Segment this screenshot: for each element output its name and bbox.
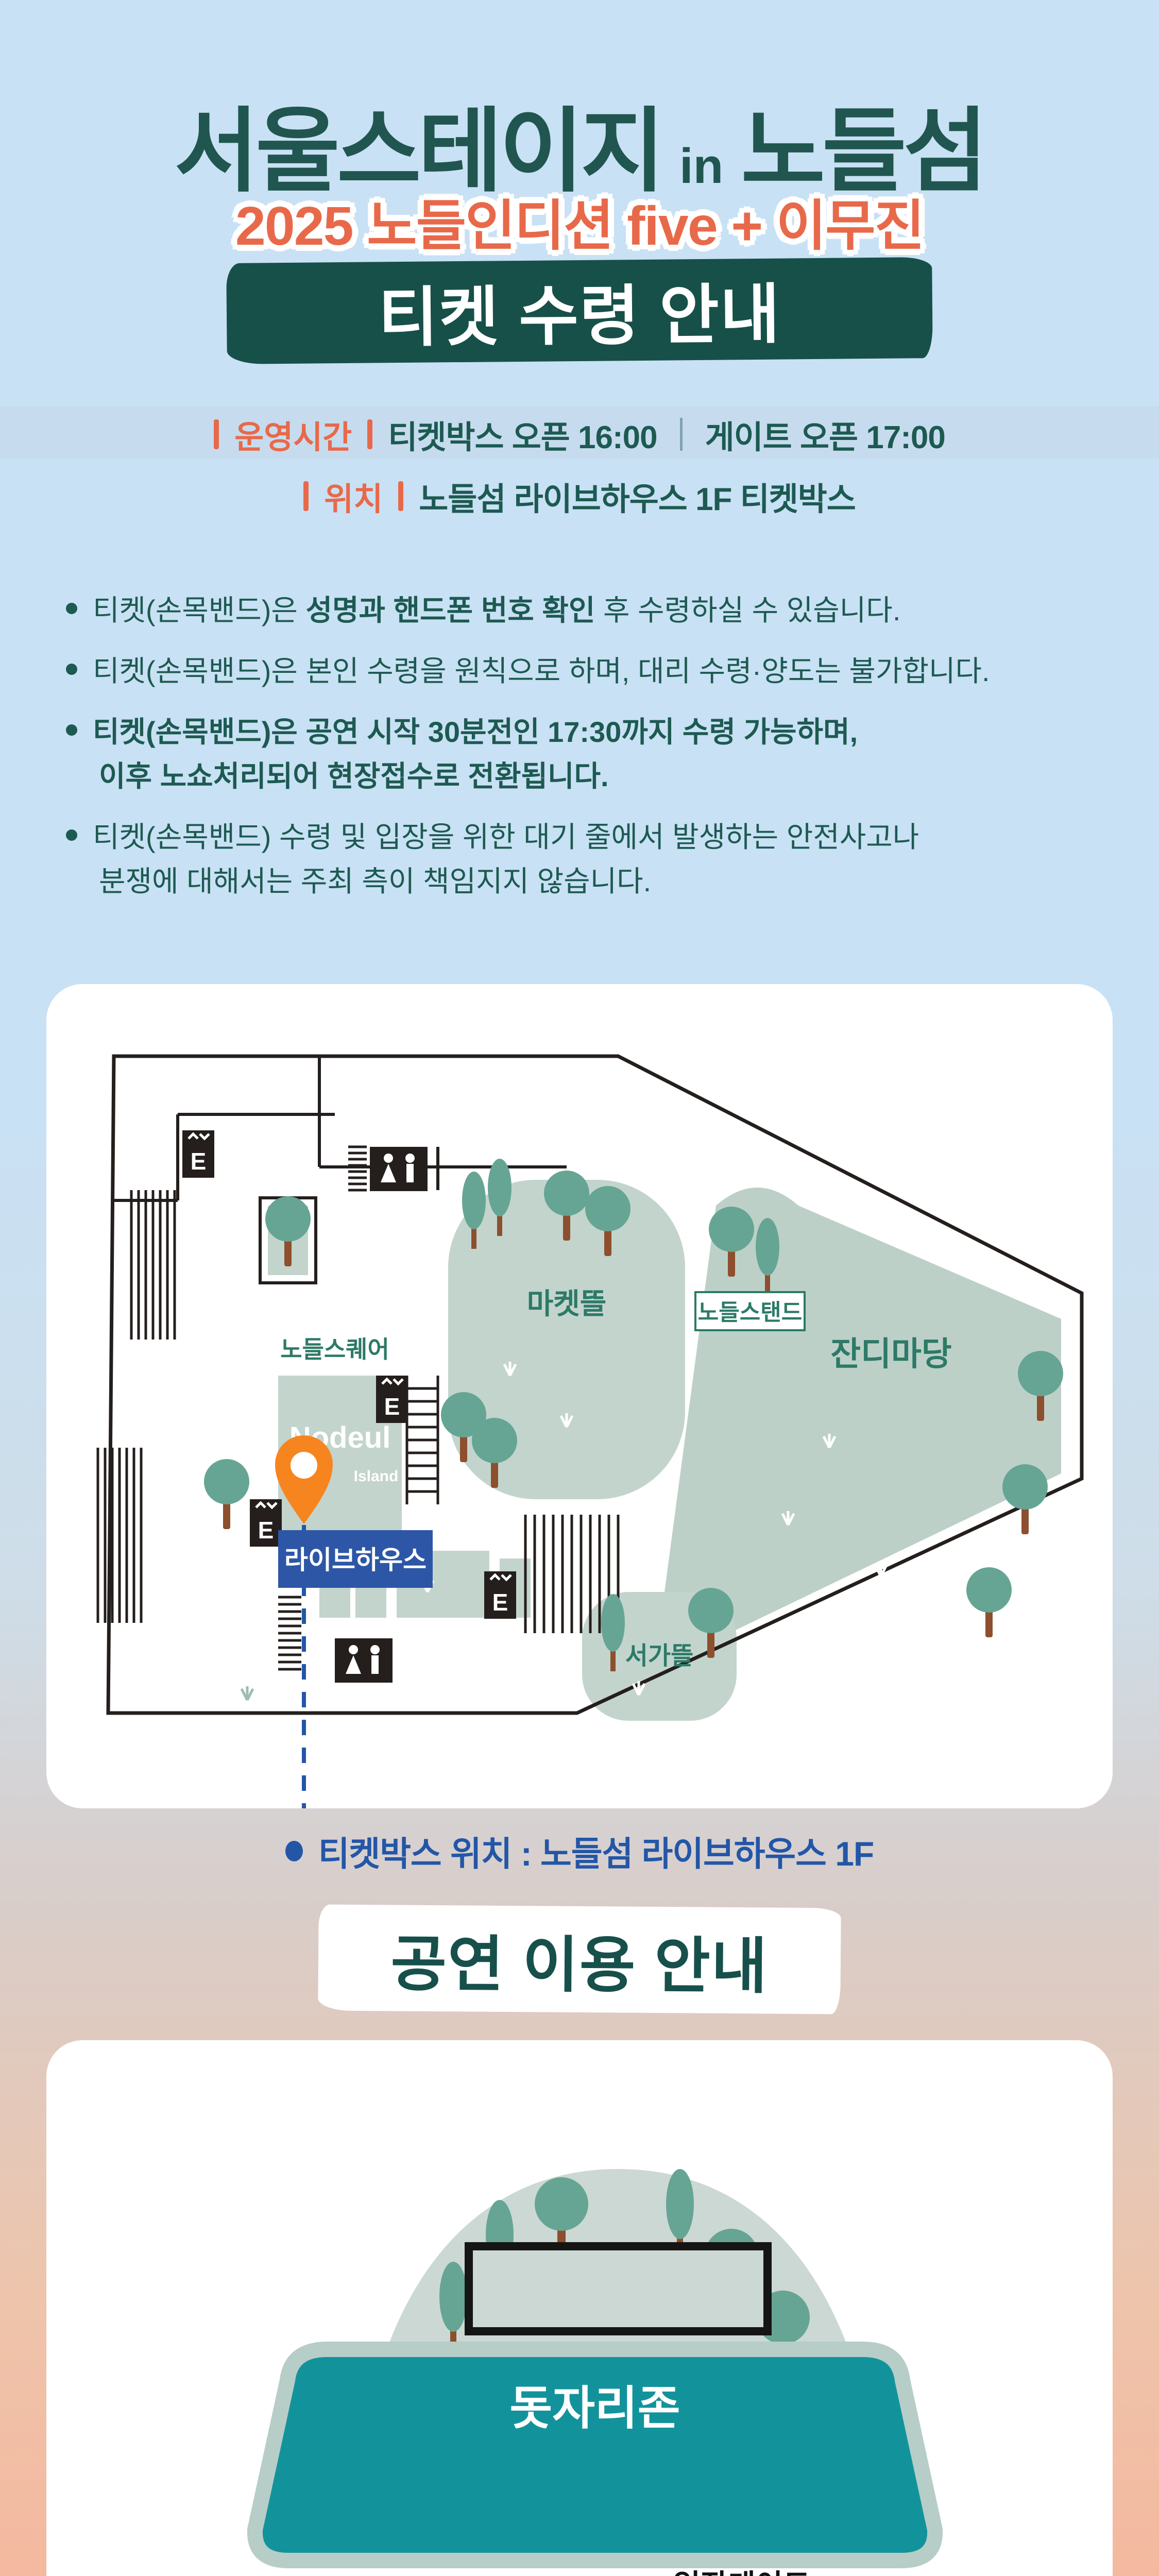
note-text: 분쟁에 대해서는 주최 측이 책임지지 않습니다. [93, 862, 1101, 901]
map-label-market: 마켓뜰 [527, 1287, 607, 1320]
location-value: 노들섬 라이브하우스 1F 티켓박스 [419, 473, 856, 519]
grass-icon [46, 1516, 52, 1530]
elevator-icon: E [182, 1130, 214, 1178]
bar-icon [398, 481, 403, 511]
list-item: 티켓(손목밴드)은 본인 수령을 원칙으로 하며, 대리 수령·양도는 불가합니… [66, 652, 1101, 690]
section-title-ticket-pickup-text: 티켓 수령 안내 [378, 262, 781, 360]
bar-icon [367, 419, 372, 449]
bar-icon [303, 481, 309, 511]
map-label-island: Island [354, 1468, 399, 1485]
elevator-icon: E [484, 1571, 516, 1619]
note-text: 티켓(손목밴드) 수령 및 입장을 위한 대기 줄에서 발생하는 안전사고나 [93, 821, 919, 853]
venue-map-card: E E E E [46, 984, 1113, 1808]
map-label-seoga: 서가뜰 [625, 1642, 693, 1670]
section-title-show-info-text: 공연 이용 안내 [390, 1914, 769, 2005]
blue-dot-icon [285, 1841, 303, 1861]
location-label: 위치 [324, 473, 383, 519]
bullet-dot-icon [66, 664, 77, 675]
hours-label: 운영시간 [234, 411, 352, 457]
note-text: 티켓(손목밴드)은 [93, 594, 306, 626]
tree-icon [1002, 1464, 1048, 1534]
svg-text:E: E [384, 1393, 400, 1420]
bullet-dot-icon [66, 603, 77, 614]
stage-screen [469, 2246, 768, 2331]
elevator-icon: E [250, 1499, 282, 1547]
mat-zone-area [255, 2349, 935, 2561]
restroom-icon [370, 1147, 428, 1191]
svg-text:E: E [492, 1589, 508, 1616]
zones-card: 돗자리존 입장게이트 시팅존 본 공연은 돗자리석과 시팅존으로 운영됩니다. … [46, 2040, 1113, 2576]
note-text: 후 수령하실 수 있습니다. [595, 594, 900, 626]
ticketbox-location-caption: 티켓박스 위치 : 노들섬 라이브하우스 1F [0, 1826, 1159, 1876]
note-text-bold: 티켓(손목밴드)은 공연 시작 30분전인 17:30까지 수령 가능하며, [93, 716, 858, 748]
bullet-dot-icon [66, 829, 77, 841]
list-item: 티켓(손목밴드) 수령 및 입장을 위한 대기 줄에서 발생하는 안전사고나 분… [66, 818, 1101, 901]
svg-text:E: E [191, 1148, 207, 1175]
bullet-dot-icon [66, 724, 77, 736]
event-subtitle: 2025 노들인디션 five + 이무진 [0, 181, 1159, 261]
zones-diagram: 돗자리존 입장게이트 시팅존 [46, 2040, 1113, 2576]
list-item: 티켓(손목밴드)은 공연 시작 30분전인 17:30까지 수령 가능하며, 이… [66, 713, 1101, 795]
tree-icon [966, 1567, 1012, 1637]
hours-row: 운영시간 티켓박스 오픈 16:00 게이트 오픈 17:00 [0, 411, 1159, 457]
ticket-pickup-notes: 티켓(손목밴드)은 성명과 핸드폰 번호 확인 후 수령하실 수 있습니다. 티… [66, 591, 1101, 923]
mat-zone-label: 돗자리존 [509, 2383, 680, 2434]
section-title-ticket-pickup: 티켓 수령 안내 [226, 257, 933, 364]
note-text: 티켓(손목밴드)은 본인 수령을 원칙으로 하며, 대리 수령·양도는 불가합니… [93, 655, 990, 687]
svg-text:E: E [258, 1517, 274, 1544]
note-text-bold: 이후 노쇼처리되어 현장접수로 전환됩니다. [93, 757, 1101, 795]
restroom-icon [335, 1638, 393, 1683]
map-label-lawn: 잔디마당 [830, 1335, 952, 1372]
list-item: 티켓(손목밴드)은 성명과 핸드폰 번호 확인 후 수령하실 수 있습니다. [66, 591, 1101, 630]
map-label-square: 노들스퀘어 [280, 1336, 389, 1363]
section-title-show-info: 공연 이용 안내 [318, 1904, 841, 2014]
grass-icon [242, 1686, 253, 1700]
island-floorplan-map: E E E E [46, 984, 1113, 1808]
hours-ticketbox-open: 티켓박스 오픈 16:00 [388, 411, 657, 457]
hours-gate-open: 게이트 오픈 17:00 [705, 411, 945, 457]
elevator-icon: E [376, 1376, 408, 1423]
tree-icon [204, 1459, 249, 1529]
location-row: 위치 노들섬 라이브하우스 1F 티켓박스 [0, 473, 1159, 519]
map-label-livehouse: 라이브하우스 [284, 1546, 427, 1574]
event-notice-poster: 서울스테이지 in 노들섬 2025 노들인디션 five + 이무진 티켓 수… [0, 0, 1159, 2576]
bar-icon [214, 419, 219, 449]
ticketbox-location-text: 티켓박스 위치 : 노들섬 라이브하우스 1F [318, 1826, 874, 1876]
entry-gate-label: 입장게이트 [673, 2569, 811, 2576]
map-label-stand: 노들스탠드 [698, 1300, 802, 1325]
divider [680, 418, 683, 451]
note-text-bold: 성명과 핸드폰 번호 확인 [306, 594, 595, 626]
